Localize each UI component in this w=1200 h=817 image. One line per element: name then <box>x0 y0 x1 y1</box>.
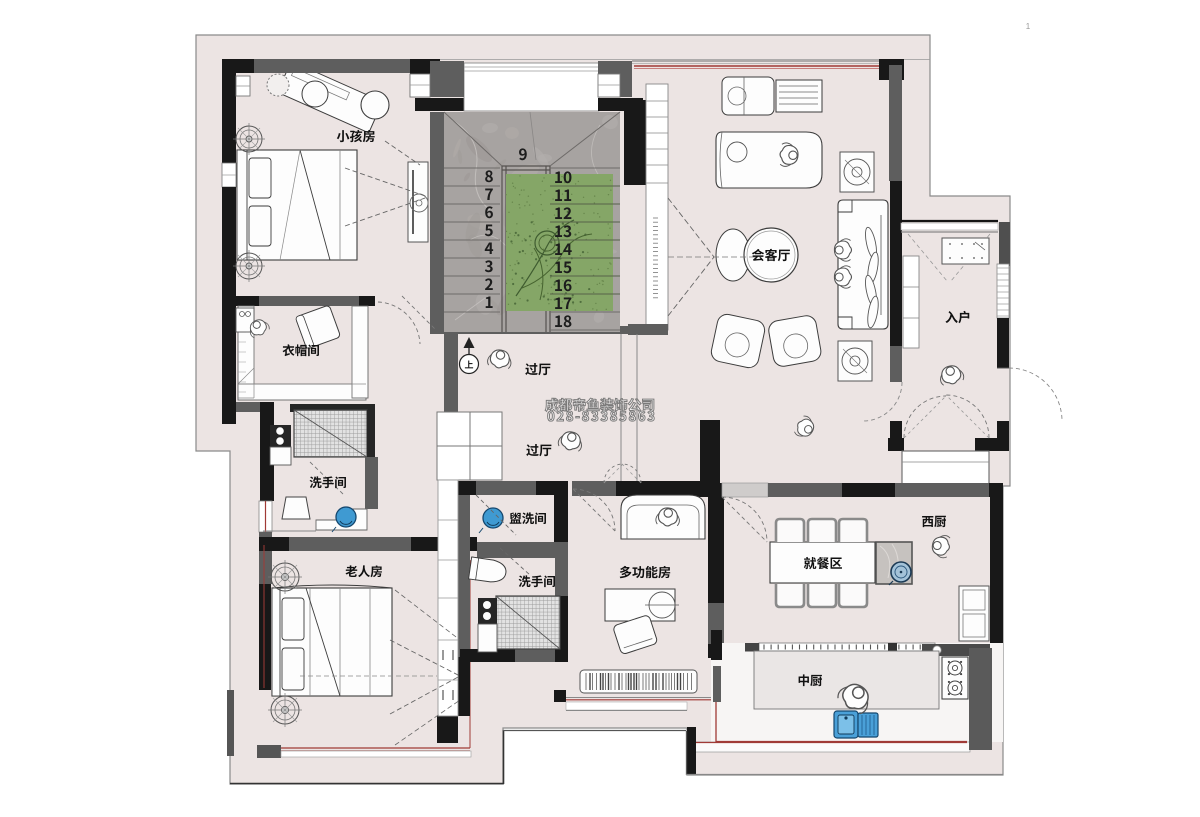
svg-text:1: 1 <box>1026 22 1031 31</box>
